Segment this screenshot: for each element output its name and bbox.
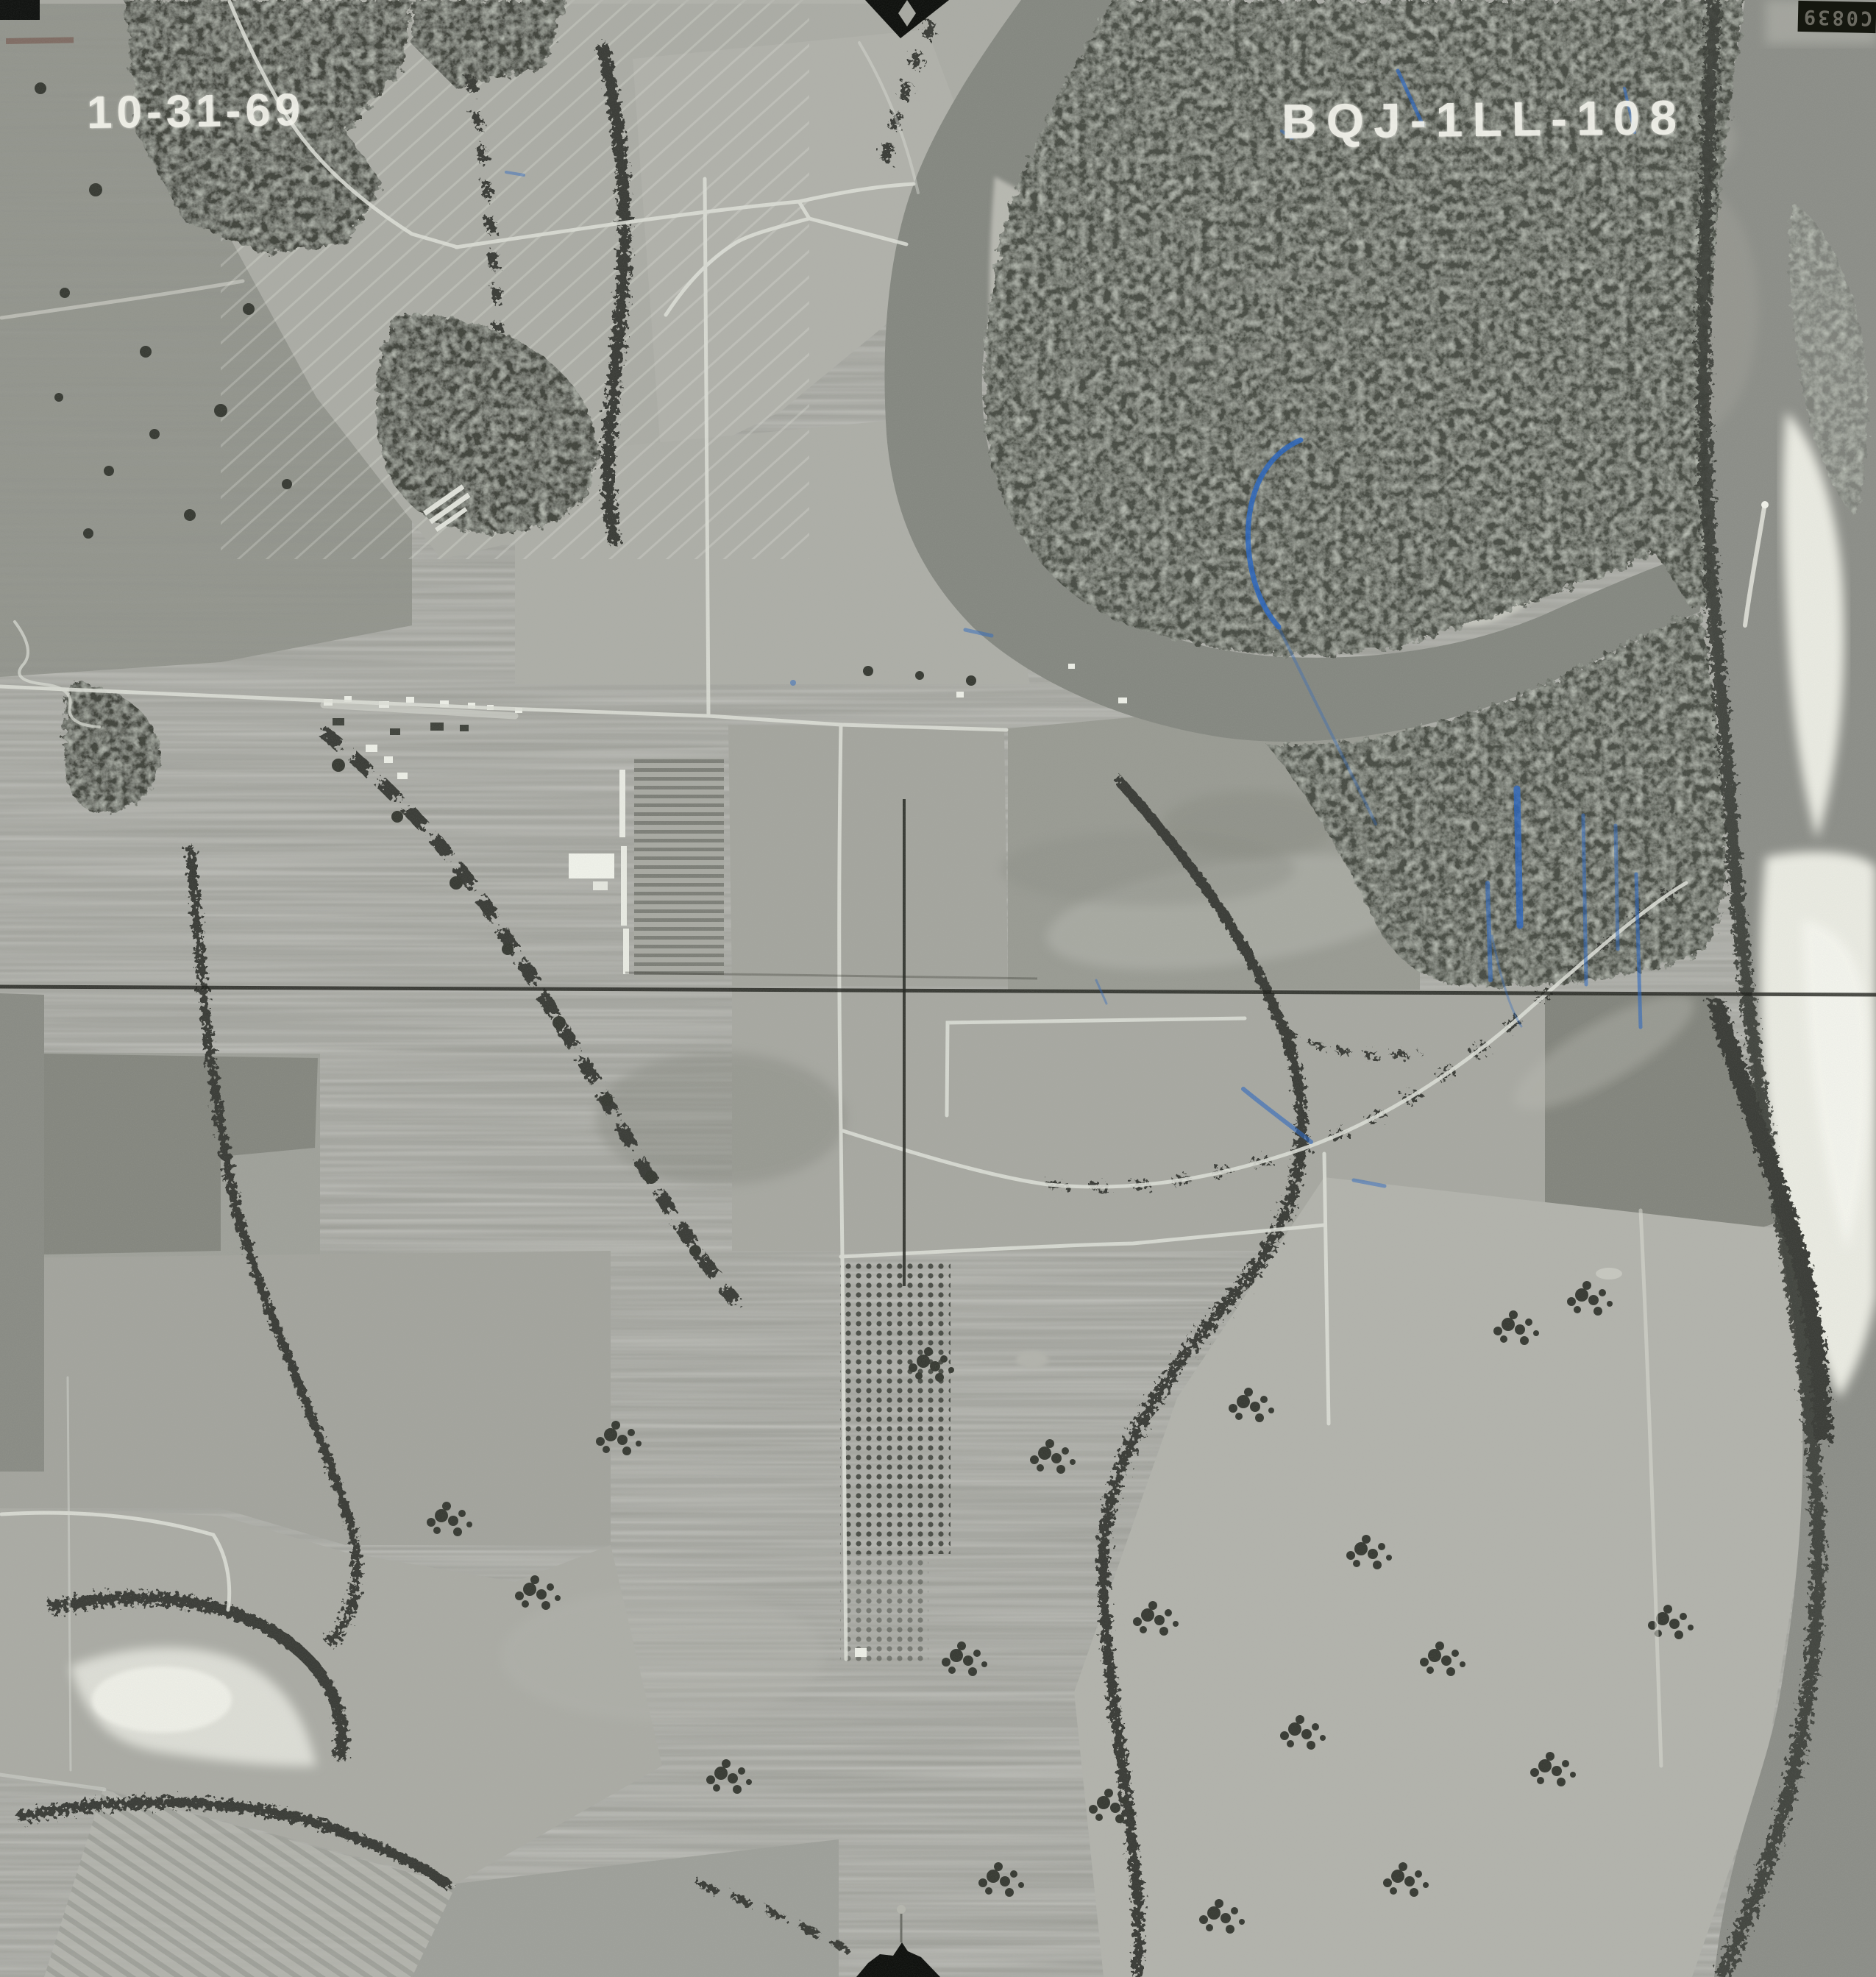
date-stamp: 10-31-69 bbox=[87, 84, 305, 139]
film-edge-tab: C0839 bbox=[1798, 1, 1876, 33]
film-edge-number: C0839 bbox=[1802, 4, 1873, 29]
photo-id-stamp: BQJ-1LL-108 bbox=[1282, 89, 1687, 149]
aerial-photo-canvas bbox=[0, 0, 1876, 1977]
film-grain bbox=[0, 0, 1876, 1977]
aerial-photo: 10-31-69 BQJ-1LL-108 C0839 bbox=[0, 0, 1876, 1977]
